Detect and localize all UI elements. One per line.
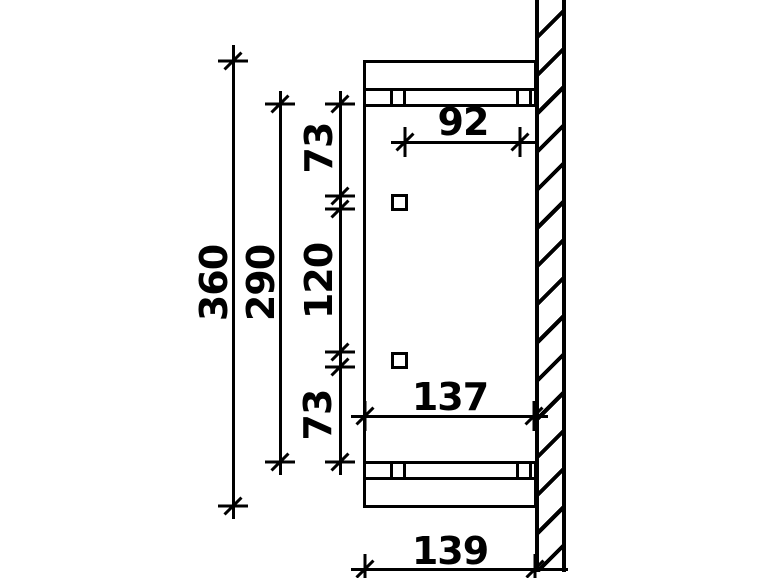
- dim-label-139: 139: [390, 531, 510, 571]
- top-batten-divider: [390, 88, 393, 107]
- wall-hatched-section: [535, 0, 566, 572]
- canopy-top-board: [363, 60, 537, 91]
- bolt-hole-upper: [391, 194, 408, 211]
- dim-label-120: 120: [299, 221, 339, 341]
- bolt-hole-lower: [391, 352, 408, 369]
- dim-label-137: 137: [390, 377, 510, 417]
- technical-drawing: 360 290 73 120 73 92: [0, 0, 770, 578]
- dim-label-360: 360: [194, 223, 234, 343]
- dim-label-290: 290: [241, 223, 281, 343]
- top-batten-divider: [529, 88, 532, 107]
- canopy-front-edge: [363, 60, 366, 508]
- dim-label-73-top: 73: [299, 88, 339, 208]
- dim-label-92: 92: [403, 102, 523, 142]
- canopy-bottom-board: [363, 477, 537, 508]
- dim-label-73-bottom: 73: [298, 355, 338, 475]
